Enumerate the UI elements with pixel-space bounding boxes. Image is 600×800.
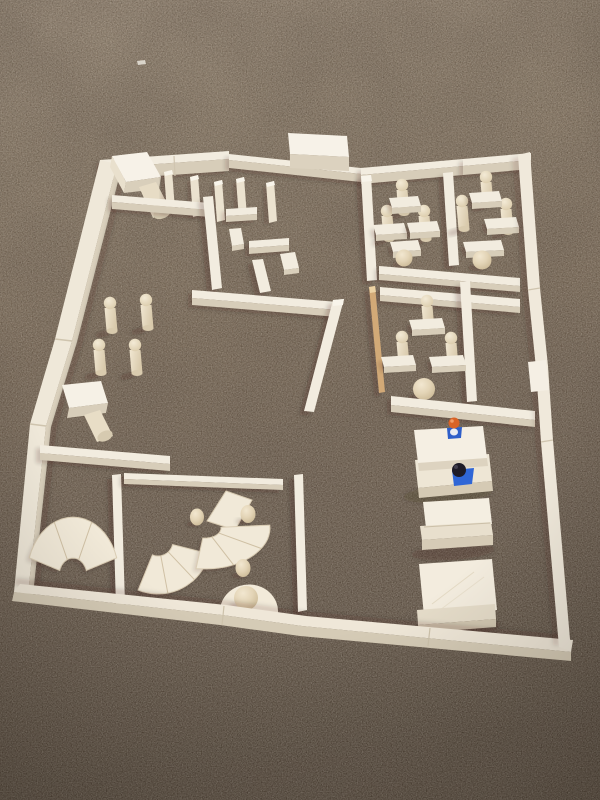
photo-stage [0, 0, 600, 800]
vignette [0, 0, 600, 800]
scene-svg [0, 0, 600, 800]
